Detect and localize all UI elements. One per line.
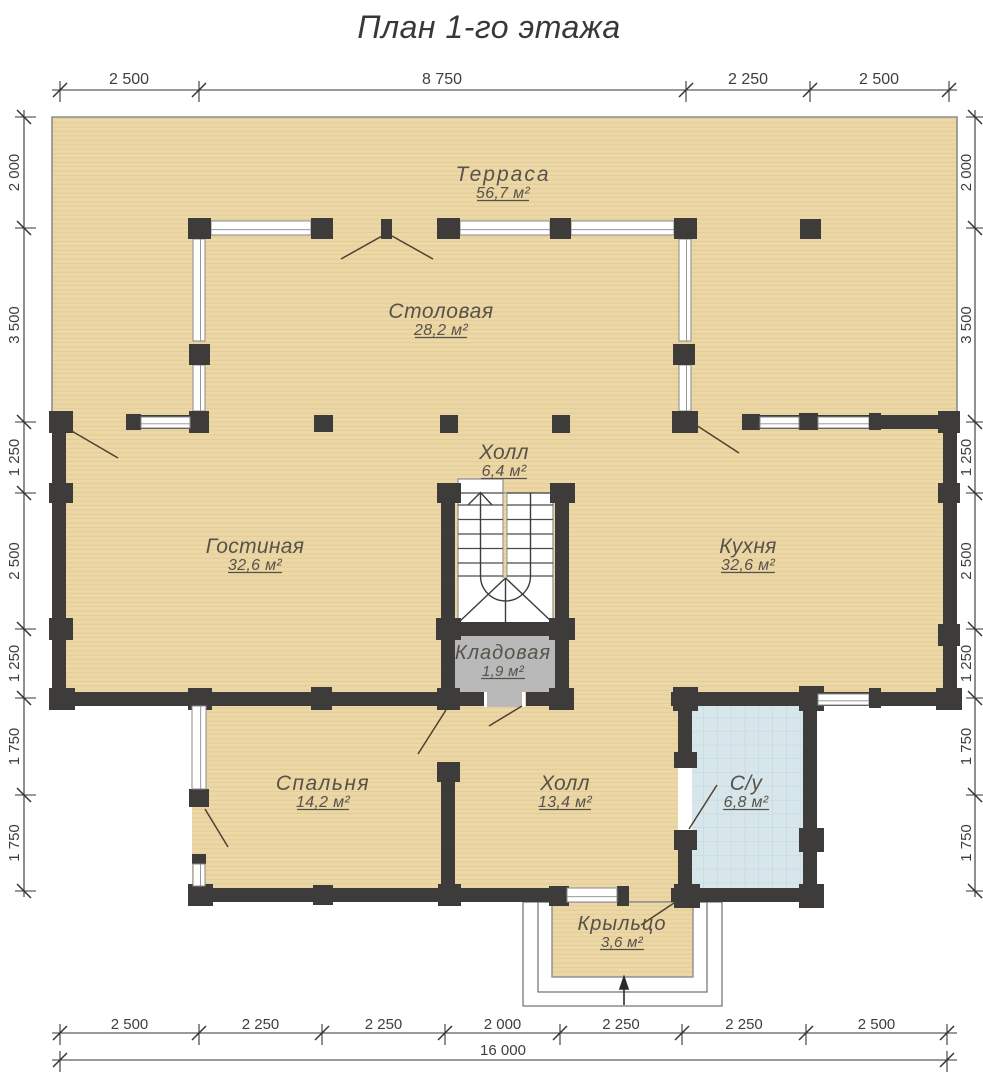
svg-text:1 750: 1 750 bbox=[958, 728, 975, 766]
svg-text:3,6 м²: 3,6 м² bbox=[601, 934, 644, 951]
svg-text:14,2 м²: 14,2 м² bbox=[296, 794, 350, 811]
svg-text:13,4 м²: 13,4 м² bbox=[538, 794, 592, 811]
svg-text:1 250: 1 250 bbox=[6, 439, 23, 477]
svg-text:2 250: 2 250 bbox=[728, 71, 768, 88]
svg-text:2 250: 2 250 bbox=[242, 1016, 280, 1033]
svg-text:3 500: 3 500 bbox=[958, 306, 975, 344]
svg-text:16 000: 16 000 bbox=[480, 1042, 526, 1059]
svg-text:1 250: 1 250 bbox=[958, 645, 975, 683]
svg-text:С/у: С/у bbox=[730, 772, 764, 795]
svg-text:32,6 м²: 32,6 м² bbox=[228, 557, 282, 574]
svg-text:1,9 м²: 1,9 м² bbox=[482, 663, 525, 680]
svg-text:1 750: 1 750 bbox=[6, 728, 23, 766]
svg-text:2 250: 2 250 bbox=[602, 1016, 640, 1033]
svg-text:Кухня: Кухня bbox=[719, 535, 776, 558]
svg-text:2 500: 2 500 bbox=[6, 542, 23, 580]
svg-text:1 250: 1 250 bbox=[6, 645, 23, 683]
svg-text:2 500: 2 500 bbox=[858, 1016, 896, 1033]
svg-text:32,6 м²: 32,6 м² bbox=[721, 557, 775, 574]
svg-text:2 500: 2 500 bbox=[958, 542, 975, 580]
svg-text:2 250: 2 250 bbox=[725, 1016, 763, 1033]
svg-text:План 1-го этажа: План 1-го этажа bbox=[357, 9, 620, 45]
svg-text:3 500: 3 500 bbox=[6, 306, 23, 344]
svg-text:2 000: 2 000 bbox=[958, 154, 975, 192]
svg-text:2 500: 2 500 bbox=[859, 71, 899, 88]
svg-text:6,4 м²: 6,4 м² bbox=[482, 463, 527, 480]
svg-text:Гостиная: Гостиная bbox=[206, 535, 304, 558]
svg-text:2 250: 2 250 bbox=[365, 1016, 403, 1033]
svg-text:2 500: 2 500 bbox=[109, 71, 149, 88]
svg-text:2 000: 2 000 bbox=[6, 154, 23, 192]
svg-text:2 500: 2 500 bbox=[111, 1016, 149, 1033]
svg-text:Холл: Холл bbox=[478, 441, 529, 464]
svg-text:Крыльцо: Крыльцо bbox=[578, 913, 667, 935]
svg-text:28,2 м²: 28,2 м² bbox=[413, 322, 468, 339]
svg-text:Столовая: Столовая bbox=[388, 300, 493, 323]
svg-text:Кладовая: Кладовая bbox=[455, 642, 551, 664]
svg-text:6,8 м²: 6,8 м² bbox=[724, 794, 769, 811]
svg-text:2 000: 2 000 bbox=[484, 1016, 522, 1033]
svg-text:56,7 м²: 56,7 м² bbox=[476, 185, 530, 202]
svg-text:Холл: Холл bbox=[539, 772, 590, 795]
svg-text:Терраса: Терраса bbox=[455, 163, 550, 186]
svg-text:1 750: 1 750 bbox=[6, 824, 23, 862]
svg-text:8 750: 8 750 bbox=[422, 71, 462, 88]
svg-text:1 250: 1 250 bbox=[958, 439, 975, 477]
svg-text:1 750: 1 750 bbox=[958, 824, 975, 862]
svg-text:Спальня: Спальня bbox=[276, 772, 370, 795]
